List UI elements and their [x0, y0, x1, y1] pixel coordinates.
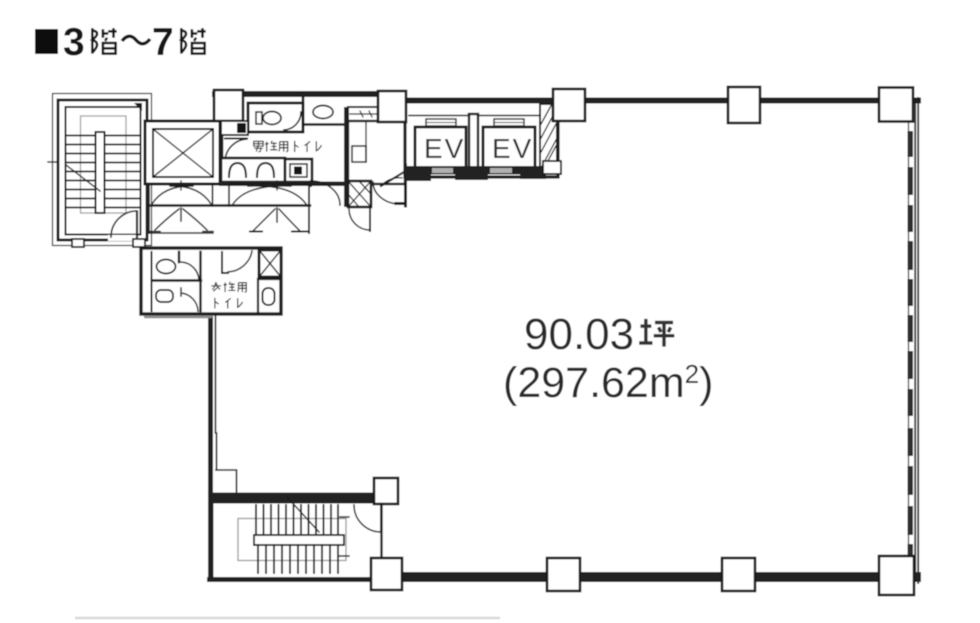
svg-text:7: 7: [152, 21, 174, 64]
svg-text:EV: EV: [424, 133, 465, 164]
svg-text:(297.62m2): (297.62m2): [503, 359, 713, 407]
svg-text:EV: EV: [492, 133, 533, 164]
svg-text:3: 3: [63, 21, 85, 64]
svg-text:90.03: 90.03: [524, 310, 634, 359]
